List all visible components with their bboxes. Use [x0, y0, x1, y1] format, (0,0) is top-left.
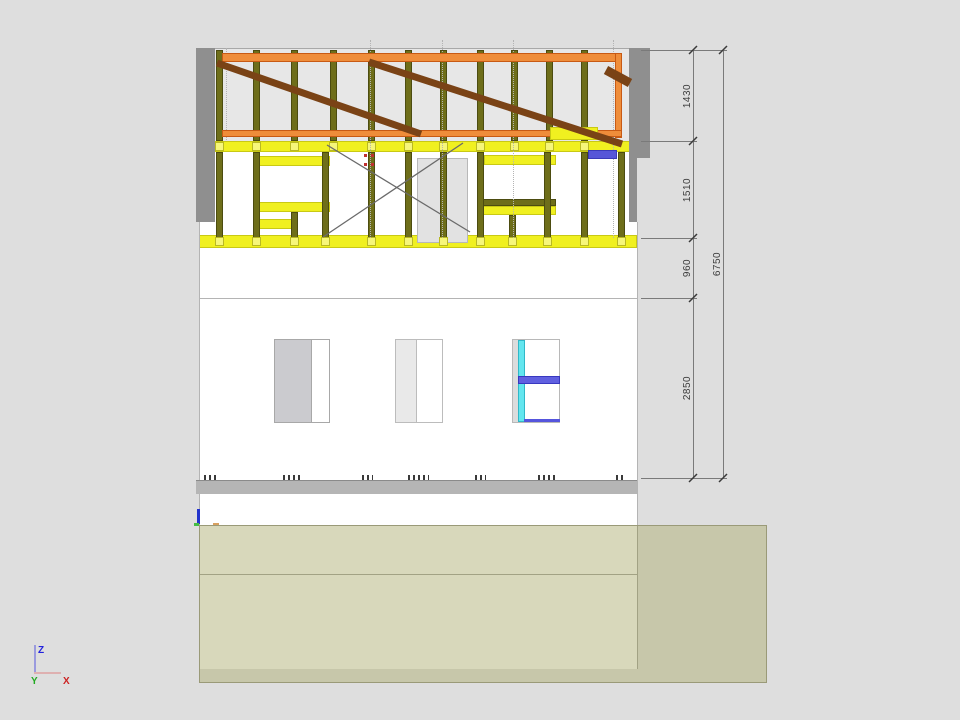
terrain-building-edge [637, 526, 638, 669]
stud [253, 50, 260, 141]
dimension-line-overall [723, 50, 724, 479]
foundation-strip [196, 480, 637, 494]
stud [405, 50, 412, 141]
top-plate-beam [222, 53, 618, 62]
window-3-blue-rail [518, 376, 560, 384]
stud-foot [476, 237, 485, 246]
extension-line [641, 50, 727, 51]
axis-z-line [34, 645, 36, 674]
fastener-mark [371, 154, 374, 157]
stud [216, 50, 223, 141]
stud [330, 50, 337, 141]
window-1-sash [275, 340, 312, 422]
dimension-line-chain [693, 50, 694, 479]
dim-label-seg1: 1430 [681, 74, 693, 118]
stud [322, 152, 329, 238]
axis-y-label: Y [31, 676, 38, 687]
stud [477, 152, 484, 238]
construction-grid-line [613, 40, 614, 238]
stud-foot [439, 142, 448, 151]
fastener-mark [364, 163, 367, 166]
dim-label-overall: 6750 [711, 242, 723, 286]
upper-floor-line [199, 298, 637, 299]
stud [581, 152, 588, 238]
axis-x-label: X [63, 676, 70, 687]
dim-label-seg3: 960 [681, 246, 693, 290]
stud [253, 152, 260, 238]
construction-grid-line [513, 40, 514, 238]
stud-foot [329, 142, 338, 151]
stud-foot [367, 142, 376, 151]
window-2 [395, 339, 443, 423]
dim-label-seg2: 1510 [681, 168, 693, 212]
stud-foot [617, 237, 626, 246]
insulation-wedge [550, 127, 598, 140]
fastener-mark [364, 154, 367, 157]
terrain-over-building [200, 526, 637, 669]
dim-label-seg4: 2850 [681, 366, 693, 410]
cad-viewport[interactable]: 1430 1510 960 2850 6750 Z Y X [0, 0, 960, 720]
extension-line [641, 298, 697, 299]
stud-foot [290, 237, 299, 246]
right-wall-edge [637, 222, 638, 525]
stud [618, 152, 625, 238]
short-stud [291, 212, 298, 238]
terrain-grade-line [200, 574, 637, 575]
extension-line [641, 238, 697, 239]
stud-foot [508, 237, 517, 246]
connector-plate-blue [588, 150, 617, 159]
top-edge-line [196, 48, 650, 49]
stud [405, 152, 412, 238]
stud-foot [404, 237, 413, 246]
left-wall-strip [196, 48, 215, 222]
stud-foot [252, 142, 261, 151]
right-wall-strip-lower [629, 158, 637, 222]
window-sill-bay-a [253, 202, 330, 212]
stud-foot [252, 237, 261, 246]
stud [216, 152, 223, 238]
extension-line [641, 141, 697, 142]
stud-foot [215, 142, 224, 151]
window-1 [274, 339, 330, 423]
stud-foot [545, 142, 554, 151]
stud-foot [543, 237, 552, 246]
fastener-mark [371, 163, 374, 166]
stud-foot [321, 237, 330, 246]
window-3 [512, 339, 560, 423]
construction-grid-line [370, 40, 371, 238]
construction-grid-line [442, 40, 443, 238]
window-header-bay-a [253, 156, 330, 166]
stud [477, 50, 484, 141]
stud-foot [367, 237, 376, 246]
stud-foot [404, 142, 413, 151]
extension-line [641, 478, 727, 479]
stud-foot [510, 142, 519, 151]
stud [291, 50, 298, 141]
window-3-blue-sill [524, 419, 560, 422]
axis-x-line [34, 672, 61, 674]
axis-z-label: Z [38, 645, 44, 656]
stud-foot [215, 237, 224, 246]
datum-tick-blue [197, 509, 200, 524]
stud [544, 152, 551, 238]
stud-foot [290, 142, 299, 151]
stud-foot [580, 237, 589, 246]
right-corner-post [615, 53, 622, 138]
window-2-sash [396, 340, 417, 422]
upper-floor-band [199, 141, 637, 152]
stud-foot [476, 142, 485, 151]
stud-foot [439, 237, 448, 246]
